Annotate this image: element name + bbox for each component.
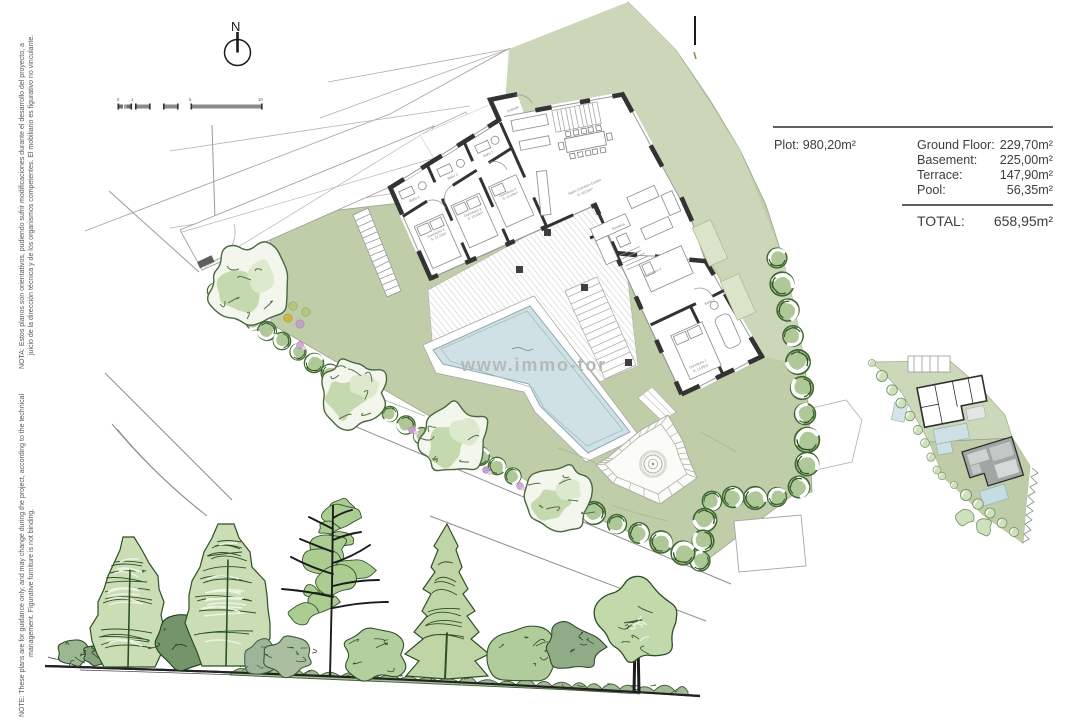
svg-text:N: N bbox=[231, 19, 240, 34]
svg-text:147,90m²: 147,90m² bbox=[1000, 168, 1053, 182]
svg-text:TOTAL:: TOTAL: bbox=[917, 213, 965, 229]
svg-text:Basement:: Basement: bbox=[917, 153, 977, 167]
svg-text:NOTA: Estos planos son orienta: NOTA: Estos planos son orientativos, pud… bbox=[19, 43, 26, 369]
svg-text:Terrace:: Terrace: bbox=[917, 168, 963, 182]
svg-text:juicio de la dirección técnica: juicio de la dirección técnica y de los … bbox=[28, 35, 35, 356]
svg-text:658,95m²: 658,95m² bbox=[994, 213, 1053, 229]
svg-text:management. Figurative furnitu: management. Figurative furniture is not … bbox=[28, 509, 35, 657]
svg-text:Plot: 980,20m²: Plot: 980,20m² bbox=[774, 138, 856, 152]
svg-text:10: 10 bbox=[258, 97, 263, 102]
svg-text:56,35m²: 56,35m² bbox=[1007, 183, 1053, 197]
svg-text:225,00m²: 225,00m² bbox=[1000, 153, 1053, 167]
svg-text:229,70m²: 229,70m² bbox=[1000, 138, 1053, 152]
svg-text:Ground Floor:: Ground Floor: bbox=[917, 138, 995, 152]
svg-text:Pool:: Pool: bbox=[917, 183, 946, 197]
svg-text:www.immo-tor: www.immo-tor bbox=[460, 355, 607, 375]
svg-text:NOTE: These plans are for guid: NOTE: These plans are for guidance only,… bbox=[19, 393, 26, 717]
